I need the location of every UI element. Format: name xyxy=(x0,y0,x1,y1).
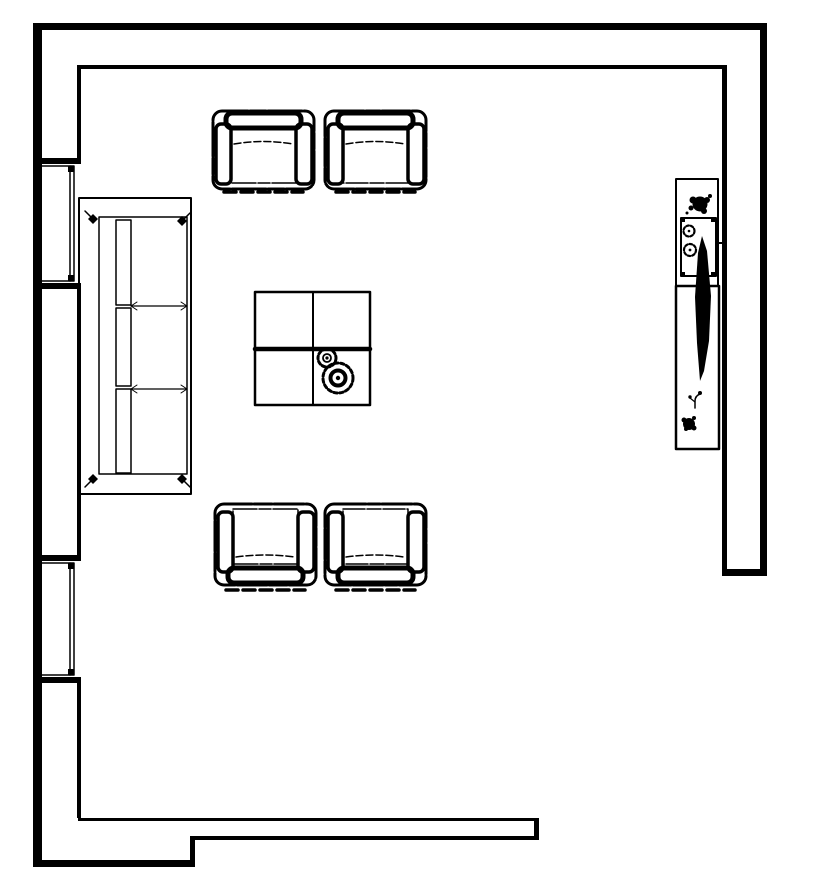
console-tray-corner-tr xyxy=(711,218,715,222)
chair-top-2-arm-left xyxy=(328,124,343,184)
console-plant-blob-3 xyxy=(704,197,710,203)
console-plant-blob-6 xyxy=(708,194,712,198)
console-plant-blob-4 xyxy=(701,208,707,214)
console-blob-bottom-3 xyxy=(692,426,697,431)
window-2-peg-bottom xyxy=(68,669,74,675)
console-tray-corner-tl xyxy=(681,218,685,222)
chair-top-1-seat-line xyxy=(234,142,293,145)
console-plant-blob-7 xyxy=(686,212,689,215)
window-1-sill-top xyxy=(33,158,81,164)
chair-bottom-2-back xyxy=(338,568,413,583)
wall-inner-left-upper xyxy=(77,65,81,158)
wall-right-end-cap xyxy=(722,569,767,576)
chair-bottom-2-arm-left xyxy=(328,512,343,572)
table-plant-large-dot xyxy=(336,376,340,380)
floor-plan-canvas xyxy=(0,0,828,875)
console-flower-1-dot xyxy=(688,230,691,233)
console-tray-corner-br xyxy=(711,272,715,276)
sofa-frame xyxy=(99,217,187,474)
window-2-sill-bottom xyxy=(33,677,81,683)
wall-outer-bottom-left xyxy=(33,860,195,867)
chair-top-2-seat xyxy=(343,128,408,183)
chair-top-2-back xyxy=(338,113,413,128)
chair-bottom-2-arm-right xyxy=(408,512,424,572)
window-1-peg-top xyxy=(68,166,74,172)
console-sprout-bud-2 xyxy=(688,395,691,398)
sofa-back-cushion-2 xyxy=(116,308,131,386)
sofa-outline[interactable] xyxy=(79,198,191,494)
chair-top-2-arm-right xyxy=(408,124,424,184)
console-plant-blob-5 xyxy=(689,206,694,211)
wall-bottom-inner-line xyxy=(78,818,539,821)
sofa-back-cushion-1 xyxy=(116,220,131,305)
wall-inner-right xyxy=(722,65,727,569)
console-blob-bottom-2 xyxy=(682,418,687,423)
chair-bottom-1-arm-right xyxy=(298,512,314,572)
window-1-sill-bottom xyxy=(33,283,81,289)
chair-top-1-back xyxy=(226,113,301,128)
console-tray-corner-bl xyxy=(681,272,685,276)
console-sprout-stem xyxy=(695,394,700,408)
chair-bottom-1-back xyxy=(228,568,303,583)
console-flower-2-dot xyxy=(689,249,692,252)
wall-outer-top xyxy=(33,23,767,30)
chair-bottom-1-arm-left xyxy=(218,512,233,572)
window-2-pane xyxy=(41,563,74,675)
sofa-corner-tick-br xyxy=(183,480,190,487)
console-blob-bottom-5 xyxy=(692,416,696,420)
console-sprout-leaf xyxy=(690,398,695,402)
floor-plan xyxy=(0,0,828,875)
chair-top-1-arm-left xyxy=(216,124,231,184)
window-2-peg-top xyxy=(68,563,74,569)
window-1-pane xyxy=(41,166,74,281)
table-plant-small-dot xyxy=(325,356,328,359)
chair-top-2-seat-line xyxy=(346,142,405,145)
wall-outer-left xyxy=(33,23,42,867)
console-blade xyxy=(695,236,711,381)
chair-bottom-2-seat-line xyxy=(346,555,404,557)
sofa-corner-tick-bl xyxy=(85,480,92,487)
window-2-sill-top xyxy=(33,555,81,561)
chair-bottom-1-seat-line xyxy=(236,555,295,557)
window-1-peg-bottom xyxy=(68,275,74,281)
console-plant-blob-2 xyxy=(690,197,697,204)
chair-top-1-arm-right xyxy=(296,124,312,184)
wall-bottom-mid xyxy=(190,836,539,840)
sofa-back-cushion-3 xyxy=(116,389,131,473)
wall-inner-top xyxy=(78,65,724,69)
chair-top-1-seat xyxy=(231,128,296,183)
console-blob-bottom-4 xyxy=(684,427,688,431)
console-sprout-bud-1 xyxy=(698,391,702,395)
sofa-corner-tick-tl xyxy=(85,211,92,218)
wall-outer-right xyxy=(760,23,767,576)
wall-inner-left-lower xyxy=(77,683,81,818)
